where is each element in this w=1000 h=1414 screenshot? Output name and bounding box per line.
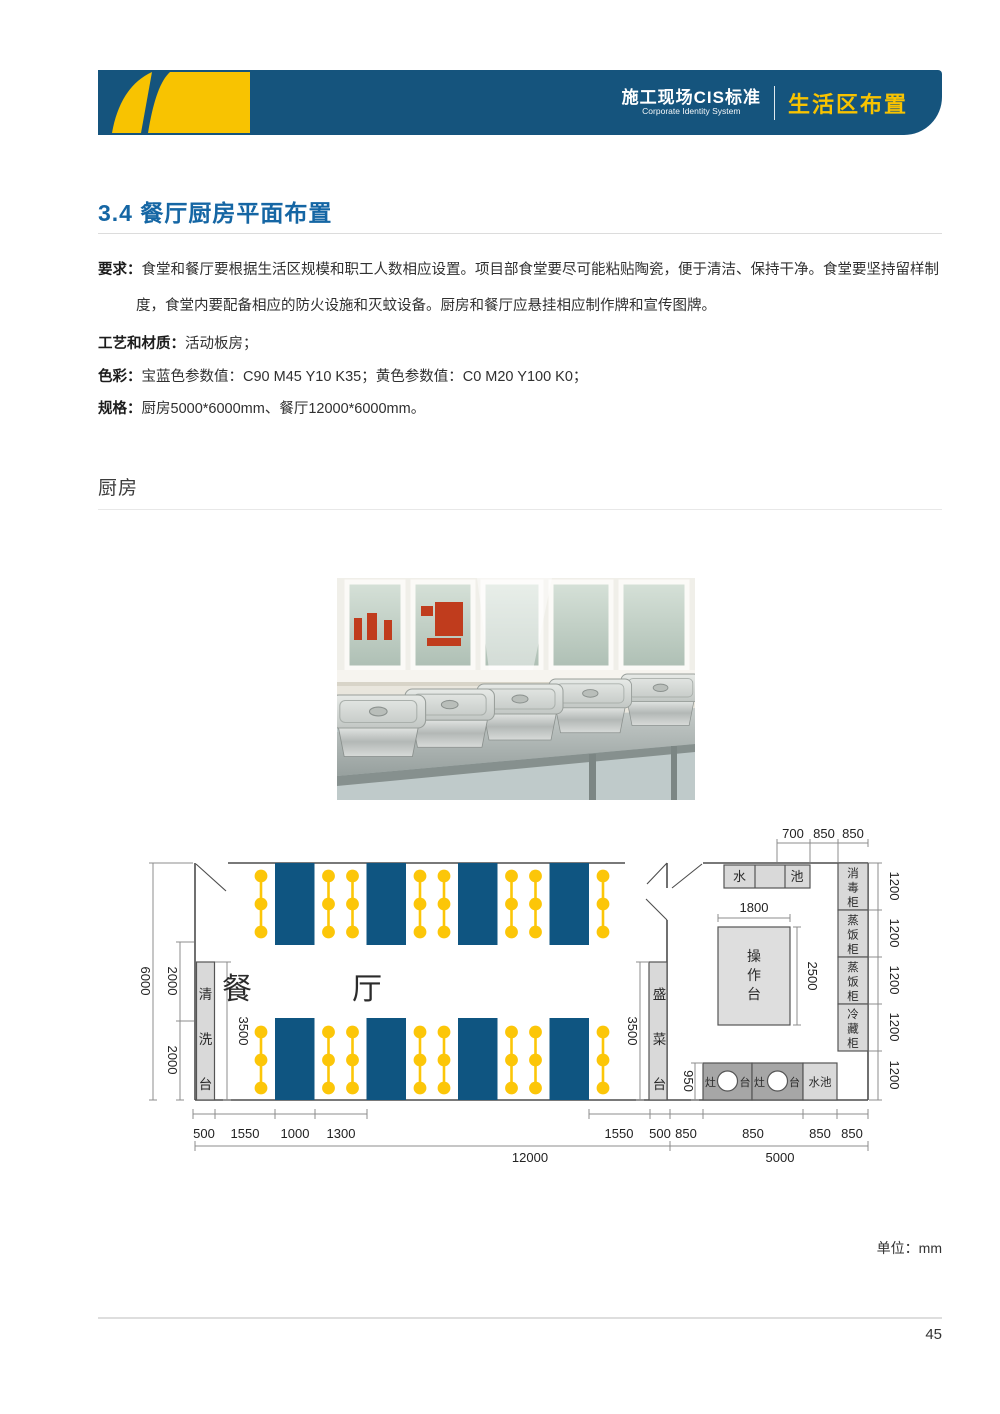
dim-label: 1200 [887, 1013, 902, 1042]
dim-label: 1200 [887, 919, 902, 948]
requirements-label: 要求： [98, 262, 142, 278]
dim-label: 1550 [231, 1126, 260, 1141]
dim-label: 500 [649, 1126, 671, 1141]
photo-table-leg [671, 746, 677, 800]
title-divider [98, 233, 942, 234]
dim-label: 850 [809, 1126, 831, 1141]
stove-label-zao: 灶 [705, 1076, 716, 1089]
dim-label: 2000 [165, 1046, 180, 1075]
dim-label: 5000 [766, 1150, 795, 1165]
section-title: 生活区布置 [788, 87, 908, 119]
stove-label-tai: 台 [789, 1075, 800, 1089]
stove-burner-icon [718, 1071, 738, 1091]
requirements-text: 食堂和餐厅要根据生活区规模和职工人数相应设置。项目部食堂要尽可能粘贴陶瓷，便于清… [136, 262, 939, 314]
color-text: 宝蓝色参数值：C90 M45 Y10 K35；黄色参数值：C0 M20 Y100… [142, 369, 588, 385]
dim-label: 1200 [887, 872, 902, 901]
dining-room-label: 餐厅 [222, 973, 482, 1006]
cis-title-block: 施工现场CIS标准 Corporate Identity System [622, 88, 761, 117]
brand-logo-icon [110, 72, 250, 133]
dim-label: 1300 [327, 1126, 356, 1141]
sink-label-left: 水 [733, 869, 746, 884]
cabinet-label: 冷藏柜 [847, 1008, 859, 1050]
small-sink-label: 水池 [809, 1076, 832, 1089]
cabinet-label: 蒸饭柜 [847, 914, 859, 956]
requirements-paragraph: 要求：食堂和餐厅要根据生活区规模和职工人数相应设置。项目部食堂要尽可能粘贴陶瓷，… [98, 252, 944, 324]
spec-text: 厨房5000*6000mm、餐厅12000*6000mm。 [142, 401, 426, 417]
dim-label: 1000 [281, 1126, 310, 1141]
dim-label: 850 [675, 1126, 697, 1141]
dim-label: 850 [742, 1126, 764, 1141]
dim-label: 850 [813, 826, 835, 841]
stove-label-zao: 灶 [754, 1076, 765, 1089]
stove-label-tai: 台 [740, 1075, 751, 1089]
photo-table-leg [589, 754, 596, 800]
document-page: 施工现场CIS标准 Corporate Identity System 生活区布… [0, 0, 1000, 1414]
spec-label: 规格： [98, 401, 142, 417]
kitchen-photo [337, 578, 695, 800]
dim-label: 1200 [887, 966, 902, 995]
dim-label: 3500 [236, 1017, 251, 1046]
dim-label: 2000 [165, 967, 180, 996]
craft-paragraph: 工艺和材质：活动板房； [98, 334, 944, 355]
dim-label: 1800 [740, 900, 769, 915]
kitchen-divider [98, 509, 942, 510]
color-paragraph: 色彩：宝蓝色参数值：C90 M45 Y10 K35；黄色参数值：C0 M20 Y… [98, 367, 944, 388]
dim-label: 950 [681, 1070, 696, 1092]
craft-label: 工艺和材质： [98, 336, 185, 352]
dim-label: 12000 [512, 1150, 548, 1165]
cabinet-label: 消毒柜 [847, 866, 859, 909]
body-text: 要求：食堂和餐厅要根据生活区规模和职工人数相应设置。项目部食堂要尽可能粘贴陶瓷，… [98, 252, 944, 432]
cabinet-label: 蒸饭柜 [847, 961, 859, 1003]
unit-note: 单位：mm [877, 1238, 942, 1258]
stove-burner-icon [768, 1071, 788, 1091]
dim-label: 500 [193, 1126, 215, 1141]
floor-plan: 餐厅 清洗台 盛菜台 水 池 消毒柜 蒸饭柜 蒸饭柜 冷藏柜 操作台 灶 台 灶… [130, 820, 930, 1170]
dim-label: 2500 [805, 962, 820, 991]
dim-label: 1200 [887, 1061, 902, 1090]
dim-label: 850 [842, 826, 864, 841]
header-banner: 施工现场CIS标准 Corporate Identity System 生活区布… [98, 70, 942, 135]
dim-label: 3500 [625, 1017, 640, 1046]
cis-subtitle: Corporate Identity System [622, 107, 761, 117]
footer-divider [98, 1317, 942, 1319]
kitchen-section-label: 厨房 [98, 473, 138, 500]
dim-label: 1550 [605, 1126, 634, 1141]
page-title: 3.4 餐厅厨房平面布置 [98, 194, 332, 228]
dim-label: 700 [782, 826, 804, 841]
plan-door-swings [196, 863, 702, 920]
sink-label-right: 池 [790, 869, 803, 884]
dim-label: 850 [841, 1126, 863, 1141]
work-table-label: 操作台 [747, 948, 761, 1002]
page-number: 45 [925, 1326, 942, 1343]
cis-title: 施工现场CIS标准 [622, 88, 761, 108]
craft-text: 活动板房； [185, 336, 258, 352]
color-label: 色彩： [98, 369, 142, 385]
spec-paragraph: 规格：厨房5000*6000mm、餐厅12000*6000mm。 [98, 399, 944, 420]
header-divider [774, 86, 775, 120]
dim-label: 6000 [138, 967, 153, 996]
